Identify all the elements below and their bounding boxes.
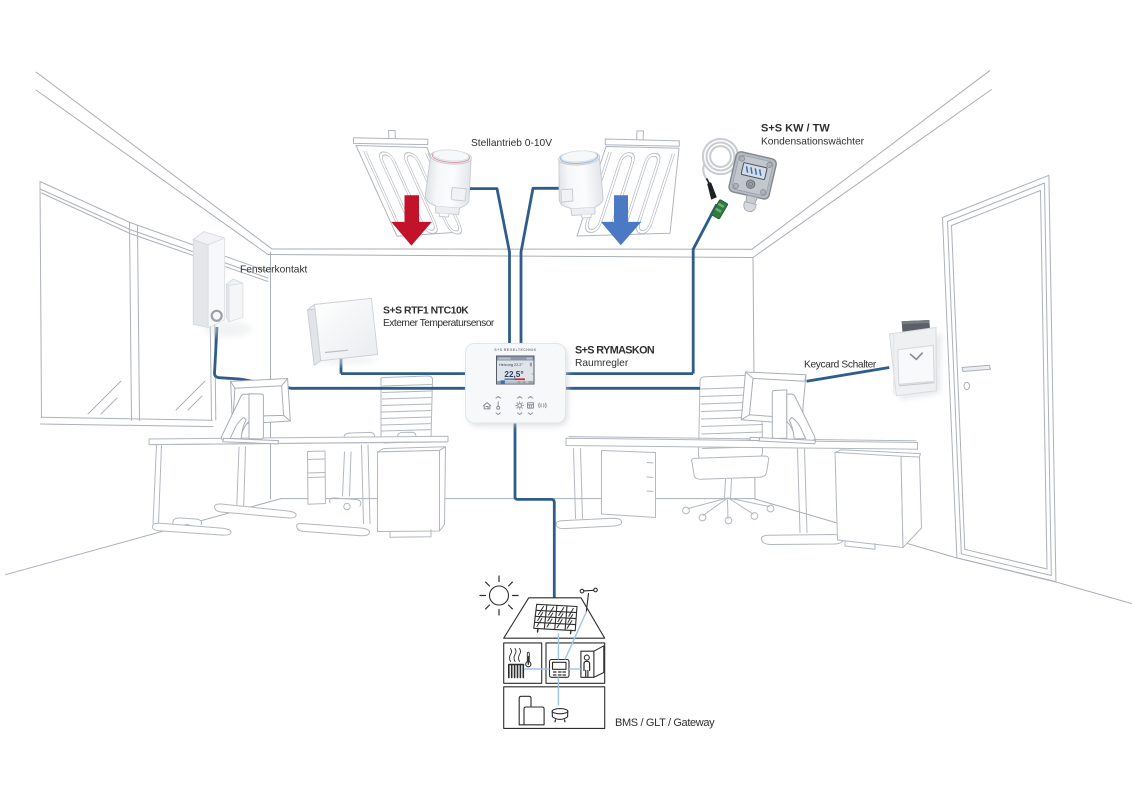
svg-text:Stellantrieb 0-10V: Stellantrieb 0-10V [471, 138, 552, 149]
svg-text:<: < [532, 372, 534, 376]
svg-text:Externer Temperatursensor: Externer Temperatursensor [383, 318, 495, 329]
svg-text:S+S REGELTECHNIK: S+S REGELTECHNIK [494, 348, 536, 352]
svg-text:S+S RYMASKON: S+S RYMASKON [575, 345, 655, 357]
svg-text:S+S KW / TW: S+S KW / TW [761, 123, 830, 135]
svg-text:Fensterkontakt: Fensterkontakt [240, 265, 308, 276]
svg-text:BMS / GLT / Gateway: BMS / GLT / Gateway [615, 717, 715, 729]
svg-text:S+S RTF1 NTC10K: S+S RTF1 NTC10K [383, 306, 469, 317]
svg-text:Heizung 22.2°: Heizung 22.2° [499, 363, 523, 367]
svg-text:22,5°: 22,5° [504, 370, 523, 379]
svg-text:Kondensationswächter: Kondensationswächter [761, 137, 865, 148]
svg-text:Keycard Schalter: Keycard Schalter [804, 360, 877, 371]
svg-text:Raumregler: Raumregler [575, 358, 629, 369]
